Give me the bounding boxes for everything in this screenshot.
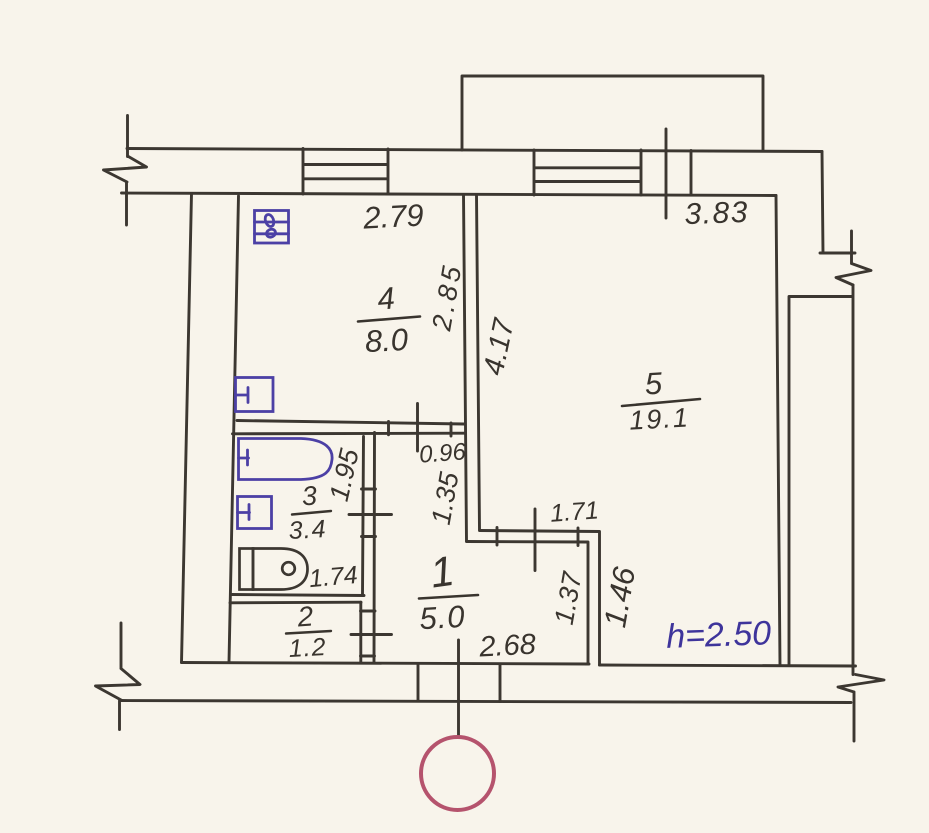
svg-text:3.83: 3.83 <box>684 196 750 231</box>
svg-text:1.74: 1.74 <box>308 561 359 593</box>
svg-text:2.79: 2.79 <box>361 197 424 235</box>
svg-text:1.71: 1.71 <box>549 496 600 527</box>
svg-text:8.0: 8.0 <box>364 322 409 359</box>
svg-text:3.4: 3.4 <box>288 515 327 545</box>
svg-text:2.68: 2.68 <box>478 629 537 664</box>
svg-text:3: 3 <box>301 481 318 512</box>
svg-text:1.2: 1.2 <box>288 633 327 663</box>
svg-text:5.0: 5.0 <box>419 599 467 636</box>
svg-text:5: 5 <box>644 366 664 402</box>
svg-text:h=2.50: h=2.50 <box>666 614 772 656</box>
svg-text:4: 4 <box>376 280 396 316</box>
svg-text:19.1: 19.1 <box>629 402 691 435</box>
svg-text:0.96: 0.96 <box>418 438 467 468</box>
svg-text:2: 2 <box>295 600 314 632</box>
